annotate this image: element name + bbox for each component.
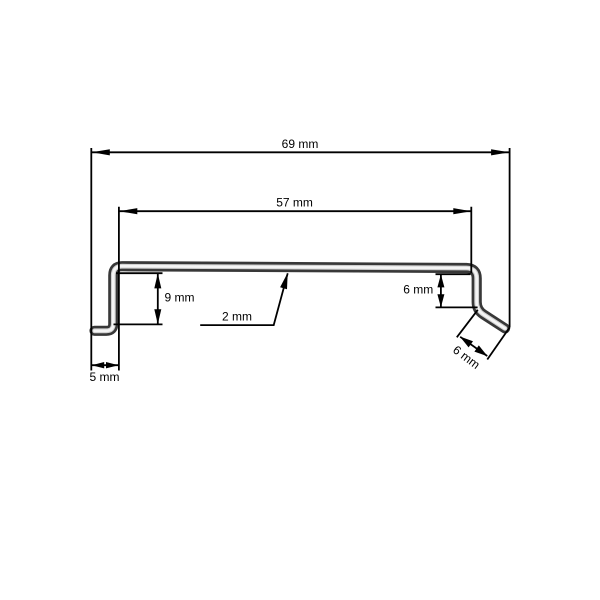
svg-text:5 mm: 5 mm [90,370,120,384]
svg-text:2 mm: 2 mm [222,309,252,323]
svg-text:69 mm: 69 mm [282,137,319,151]
svg-text:9 mm: 9 mm [165,291,195,305]
svg-text:57 mm: 57 mm [276,196,313,210]
svg-text:6 mm: 6 mm [403,282,433,296]
